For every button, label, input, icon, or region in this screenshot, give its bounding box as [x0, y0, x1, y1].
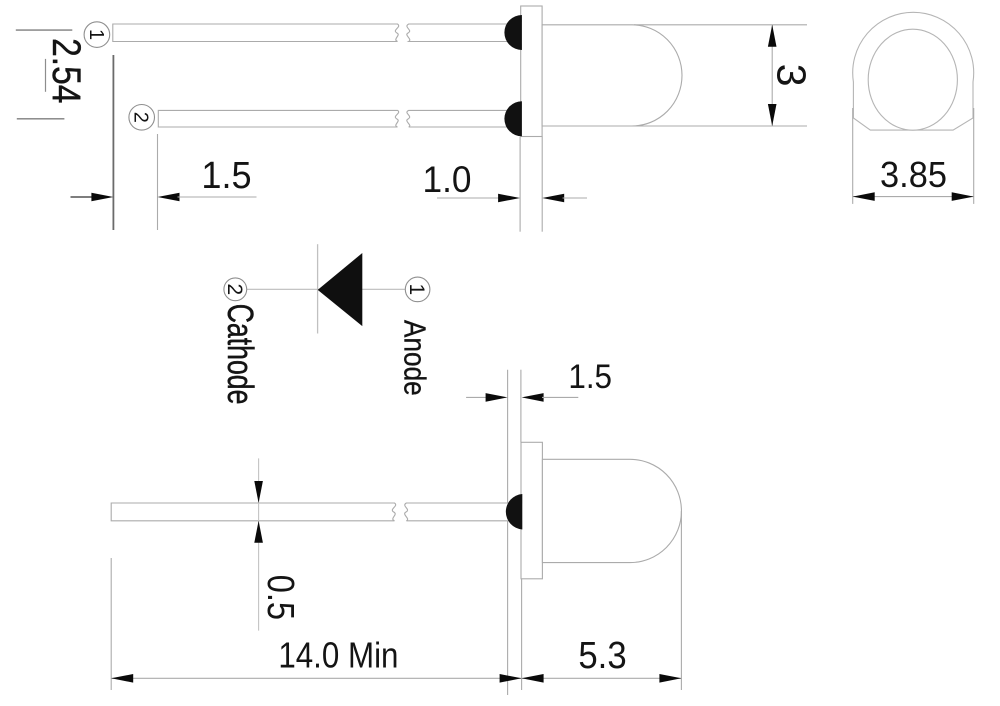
svg-text:1.5: 1.5 [568, 357, 612, 395]
svg-text:1: 1 [405, 284, 428, 296]
svg-text:5.3: 5.3 [578, 634, 626, 677]
svg-text:1: 1 [85, 29, 107, 40]
svg-text:Anode: Anode [397, 320, 432, 396]
svg-text:2: 2 [130, 112, 152, 123]
svg-text:1.0: 1.0 [423, 158, 472, 200]
svg-text:3.85: 3.85 [880, 155, 947, 195]
svg-text:3: 3 [769, 64, 815, 87]
svg-text:1.5: 1.5 [201, 153, 251, 196]
svg-text:2: 2 [223, 283, 246, 295]
svg-text:0.5: 0.5 [259, 575, 302, 620]
svg-text:14.0 Min: 14.0 Min [278, 635, 398, 676]
svg-text:2.54: 2.54 [44, 38, 88, 103]
svg-text:Cathode: Cathode [220, 304, 261, 405]
